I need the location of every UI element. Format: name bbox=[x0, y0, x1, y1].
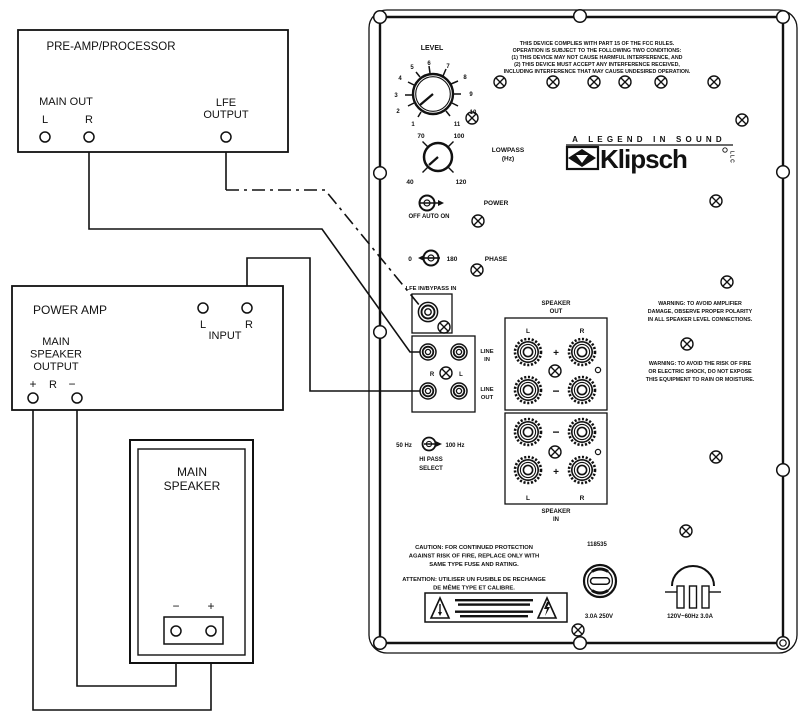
speaker-in-terminal bbox=[515, 419, 541, 445]
speaker-in-terminal bbox=[569, 419, 595, 445]
poweramp-input-label: INPUT bbox=[209, 330, 242, 342]
screw-icon bbox=[549, 365, 561, 377]
screw-icon bbox=[655, 76, 667, 88]
speaker-minus-terminal bbox=[171, 626, 181, 636]
screw-icon bbox=[494, 76, 506, 88]
preamp-main-out-r-jack bbox=[84, 132, 94, 142]
lowpass-100: 100 bbox=[454, 133, 465, 140]
speaker-in-l-label: L bbox=[526, 495, 530, 502]
main-speaker-box: MAINSPEAKER − + bbox=[130, 440, 253, 663]
speaker-out-terminal bbox=[515, 377, 541, 403]
speaker-plus-label: + bbox=[207, 599, 214, 613]
lowpass-40: 40 bbox=[406, 179, 414, 186]
wiring-diagram-page: THIS DEVICE COMPLIES WITH PART 15 OF THE… bbox=[0, 0, 802, 716]
preamp-l-label: L bbox=[42, 114, 48, 126]
brand-tagline: A LEGEND IN SOUND bbox=[572, 135, 726, 144]
screw-icon bbox=[440, 367, 452, 379]
screw-icon bbox=[619, 76, 631, 88]
hipass-50-label: 50 Hz bbox=[396, 443, 412, 449]
preamp-main-out-label: MAIN OUT bbox=[39, 96, 93, 108]
mounting-hole bbox=[574, 10, 587, 23]
poweramp-minus-label: − bbox=[68, 377, 75, 391]
phase-0-label: 0 bbox=[408, 256, 412, 263]
speaker-in-r-label: R bbox=[580, 495, 585, 502]
speaker-out-plus: + bbox=[553, 348, 559, 359]
speaker-in-plus: + bbox=[553, 467, 559, 478]
speaker-out-minus: − bbox=[552, 384, 559, 398]
preamp-box: PRE-AMP/PROCESSOR MAIN OUT L R LFEOUTPUT bbox=[18, 30, 288, 152]
speaker-in-terminal bbox=[515, 457, 541, 483]
cord-strand bbox=[690, 586, 697, 608]
speaker-out-l-label: L bbox=[526, 328, 530, 335]
speaker-out-terminal bbox=[515, 339, 541, 365]
screw-icon bbox=[572, 624, 584, 636]
lfe-input-jack bbox=[418, 302, 437, 321]
mounting-hole bbox=[777, 11, 790, 24]
screw-icon bbox=[710, 451, 722, 463]
phase-label: PHASE bbox=[485, 256, 508, 263]
cord-strand bbox=[677, 586, 684, 608]
poweramp-box: POWER AMP L R INPUT MAINSPEAKEROUTPUT + … bbox=[12, 286, 283, 410]
poweramp-r-label: R bbox=[245, 319, 253, 331]
phase-180-label: 180 bbox=[447, 256, 458, 263]
screw-icon bbox=[547, 76, 559, 88]
mounting-hole bbox=[374, 11, 387, 24]
poweramp-channel-label: R bbox=[49, 379, 57, 391]
mounting-hole bbox=[574, 637, 587, 650]
safety-label bbox=[425, 593, 567, 622]
poweramp-output-plus-terminal bbox=[28, 393, 38, 403]
speaker-in-minus: − bbox=[552, 425, 559, 439]
poweramp-input-l-jack bbox=[198, 303, 208, 313]
mounting-hole bbox=[374, 326, 387, 339]
screw-icon bbox=[680, 525, 692, 537]
line-in-right-jack bbox=[420, 344, 436, 360]
speaker-plus-terminal bbox=[206, 626, 216, 636]
poweramp-title: POWER AMP bbox=[33, 303, 107, 317]
line-in-left-jack bbox=[451, 344, 467, 360]
poweramp-l-label: L bbox=[200, 319, 206, 331]
warning-moisture-text: WARNING: TO AVOID THE RISK OF FIREOR ELE… bbox=[646, 361, 755, 383]
lowpass-120: 120 bbox=[456, 179, 467, 186]
brand-suffix: LLC bbox=[729, 151, 735, 164]
mounting-screw bbox=[777, 637, 790, 650]
subwoofer-hookup-diagram: THIS DEVICE COMPLIES WITH PART 15 OF THE… bbox=[0, 0, 802, 716]
brand-name: Klipsch bbox=[600, 144, 687, 174]
power-label: POWER bbox=[484, 200, 509, 207]
line-out-left-jack bbox=[451, 383, 467, 399]
screw-icon bbox=[438, 321, 450, 333]
preamp-lfe-output-jack bbox=[221, 132, 231, 142]
speaker-out-section: SPEAKEROUT L R + − bbox=[505, 301, 607, 410]
poweramp-input-r-jack bbox=[242, 303, 252, 313]
mounting-hole bbox=[374, 167, 387, 180]
screw-icon bbox=[471, 264, 483, 276]
screw-icon bbox=[549, 446, 561, 458]
screw-icon bbox=[588, 76, 600, 88]
preamp-title: PRE-AMP/PROCESSOR bbox=[46, 41, 175, 53]
speaker-out-terminal bbox=[569, 377, 595, 403]
screw-icon bbox=[681, 338, 693, 350]
screw-icon bbox=[472, 215, 484, 227]
preamp-main-out-l-jack bbox=[40, 132, 50, 142]
mains-rating: 120V~60Hz 3.0A bbox=[667, 614, 714, 620]
screw-icon bbox=[710, 195, 722, 207]
speaker-minus-label: − bbox=[172, 599, 179, 613]
fuse-rating: 3.0A 250V bbox=[585, 614, 613, 620]
svg-text:11: 11 bbox=[454, 122, 461, 128]
line-l-label: L bbox=[459, 372, 463, 378]
line-out-right-jack bbox=[420, 383, 436, 399]
klipsch-mark-icon bbox=[567, 147, 598, 169]
speaker-out-terminal bbox=[569, 339, 595, 365]
hipass-100-label: 100 Hz bbox=[445, 443, 464, 449]
line-r-label: R bbox=[430, 372, 435, 378]
mounting-hole bbox=[777, 464, 790, 477]
preamp-r-label: R bbox=[85, 114, 93, 126]
speaker-out-r-label: R bbox=[580, 328, 585, 335]
svg-text:10: 10 bbox=[470, 110, 477, 116]
lowpass-70: 70 bbox=[417, 133, 425, 140]
speaker-in-terminal bbox=[569, 457, 595, 483]
screw-icon bbox=[736, 114, 748, 126]
warning-polarity-text: WARNING: TO AVOID AMPLIFIERDAMAGE, OBSER… bbox=[648, 301, 753, 323]
cord-strand bbox=[702, 586, 709, 608]
level-label: LEVEL bbox=[421, 45, 444, 52]
poweramp-output-minus-terminal bbox=[72, 393, 82, 403]
poweramp-plus-label: + bbox=[29, 377, 36, 391]
screw-icon bbox=[721, 276, 733, 288]
power-modes-label: OFF AUTO ON bbox=[409, 214, 450, 220]
lfe-in-label: LFE IN/BYPASS IN bbox=[406, 286, 457, 292]
fuse-part-number: 118535 bbox=[587, 542, 607, 548]
mounting-hole bbox=[777, 166, 790, 179]
fcc-notice: THIS DEVICE COMPLIES WITH PART 15 OF THE… bbox=[504, 41, 691, 75]
screw-icon bbox=[708, 76, 720, 88]
mounting-hole bbox=[374, 637, 387, 650]
